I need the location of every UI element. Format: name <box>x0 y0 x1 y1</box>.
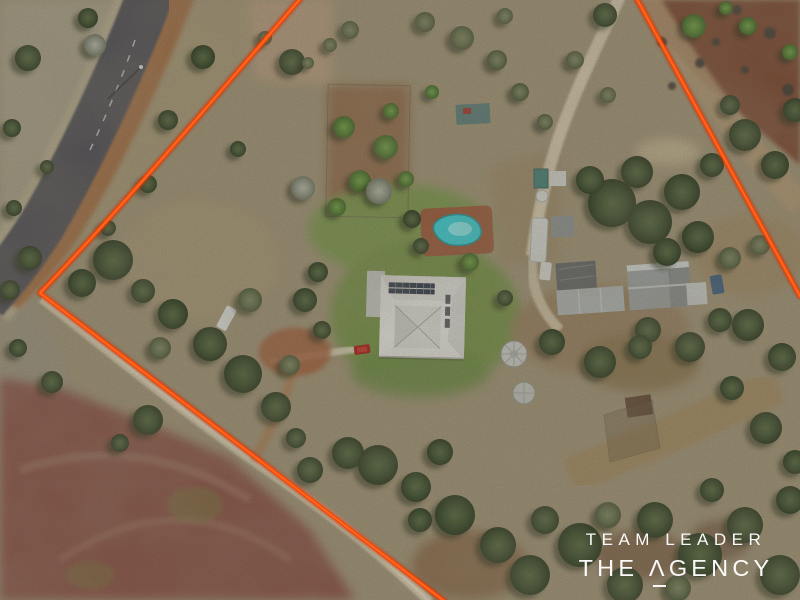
aerial-photo: TEAM LEADER THE ΛGENCY <box>0 0 800 600</box>
aerial-photo-canvas <box>0 0 800 600</box>
photo-grain <box>0 0 800 600</box>
